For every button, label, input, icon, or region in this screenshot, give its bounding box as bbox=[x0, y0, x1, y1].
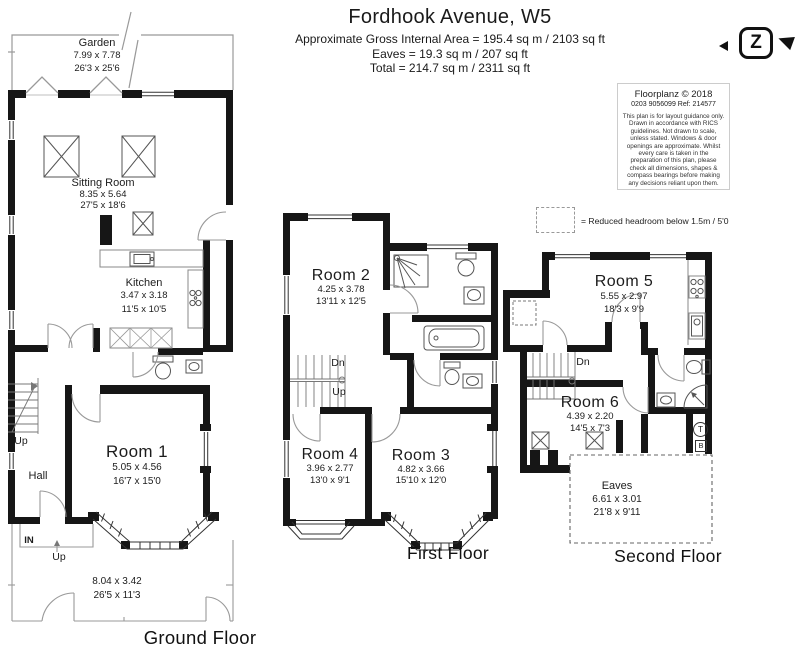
room-dim-imperial: 21'8 x 9'11 bbox=[592, 506, 641, 519]
room-dim-imperial: 18'3 x 9'9 bbox=[595, 304, 653, 317]
room-dim-metric: 4.82 x 3.66 bbox=[392, 464, 450, 475]
eaves-label: Eaves 6.61 x 3.01 21'8 x 9'11 bbox=[592, 480, 641, 519]
room-name: Kitchen bbox=[120, 277, 167, 289]
room-dim-imperial: 13'0 x 9'1 bbox=[302, 475, 359, 487]
room-dim-imperial: 15'10 x 12'0 bbox=[392, 475, 450, 486]
second-floor-label: Second Floor bbox=[614, 546, 722, 566]
room-name: Eaves bbox=[592, 480, 641, 493]
stairs-down-label: Dn bbox=[331, 358, 344, 369]
room-dim-metric: 4.25 x 3.78 bbox=[312, 284, 370, 296]
room-name: Room 4 bbox=[302, 447, 359, 463]
room-name: Room 2 bbox=[312, 267, 370, 284]
tank-symbol: T bbox=[693, 422, 708, 437]
room6-label: Room 6 4.39 x 2.20 14'5 x 7'3 bbox=[561, 394, 619, 435]
room-name: Sitting Room bbox=[72, 177, 135, 189]
room4-label: Room 4 3.96 x 2.77 13'0 x 9'1 bbox=[302, 447, 359, 486]
room-dim-metric: 7.99 x 7.78 bbox=[73, 49, 120, 62]
room-dim-imperial: 14'5 x 7'3 bbox=[561, 423, 619, 435]
room-dim-imperial: 16'7 x 15'0 bbox=[106, 475, 168, 489]
room2-label: Room 2 4.25 x 3.78 13'11 x 12'5 bbox=[312, 267, 370, 308]
room-dim-metric: 8.04 x 3.42 bbox=[92, 575, 141, 589]
hall-label: Hall bbox=[29, 470, 48, 482]
room-name: Room 6 bbox=[561, 394, 619, 411]
room-dim-imperial: 27'5 x 18'6 bbox=[72, 200, 135, 211]
first-floor-label: First Floor bbox=[407, 543, 489, 563]
room-dim-metric: 5.55 x 2.97 bbox=[595, 291, 653, 304]
floorplan-page: Fordhook Avenue, W5 Approximate Gross In… bbox=[0, 0, 800, 652]
sitting-room-label: Sitting Room 8.35 x 5.64 27'5 x 18'6 bbox=[72, 177, 135, 211]
stairs-up-label: Up bbox=[332, 387, 345, 398]
room-name: Room 3 bbox=[392, 449, 450, 464]
path-up-label: Up bbox=[52, 552, 65, 563]
garden-label: Garden 7.99 x 7.78 26'3 x 25'6 bbox=[73, 37, 120, 75]
room1-label: Room 1 5.05 x 4.56 16'7 x 15'0 bbox=[106, 443, 168, 489]
room-dim-metric: 8.35 x 5.64 bbox=[72, 189, 135, 200]
entrance-label: IN bbox=[24, 536, 34, 546]
ground-floor-label: Ground Floor bbox=[144, 628, 257, 648]
room3-label: Room 3 4.82 x 3.66 15'10 x 12'0 bbox=[392, 449, 450, 486]
stairs-up-label: Up bbox=[14, 436, 27, 447]
room-dim-imperial: 13'11 x 12'5 bbox=[312, 296, 370, 308]
room-dim-imperial: 11'5 x 10'5 bbox=[120, 303, 167, 317]
room-dim-imperial: 26'5 x 11'3 bbox=[92, 589, 141, 603]
room-dim-imperial: 26'3 x 25'6 bbox=[73, 62, 120, 75]
room-dim-metric: 6.61 x 3.01 bbox=[592, 493, 641, 506]
room-name: Garden bbox=[73, 37, 120, 49]
room-dim-metric: 3.96 x 2.77 bbox=[302, 463, 359, 475]
room5-label: Room 5 5.55 x 2.97 18'3 x 9'9 bbox=[595, 273, 653, 316]
first-floor-plan bbox=[283, 213, 498, 550]
front-garden-label: 8.04 x 3.42 26'5 x 11'3 bbox=[92, 575, 141, 603]
kitchen-label: Kitchen 3.47 x 3.18 11'5 x 10'5 bbox=[120, 277, 167, 316]
room-dim-metric: 4.39 x 2.20 bbox=[561, 411, 619, 423]
stairs-down-label: Dn bbox=[576, 357, 589, 368]
room-name: Room 1 bbox=[106, 443, 168, 461]
room-dim-metric: 5.05 x 4.56 bbox=[106, 461, 168, 475]
boiler-symbol: B bbox=[695, 440, 707, 452]
room-name: Room 5 bbox=[595, 273, 653, 291]
room-dim-metric: 3.47 x 3.18 bbox=[120, 289, 167, 303]
ground-floor-plan bbox=[8, 12, 233, 621]
